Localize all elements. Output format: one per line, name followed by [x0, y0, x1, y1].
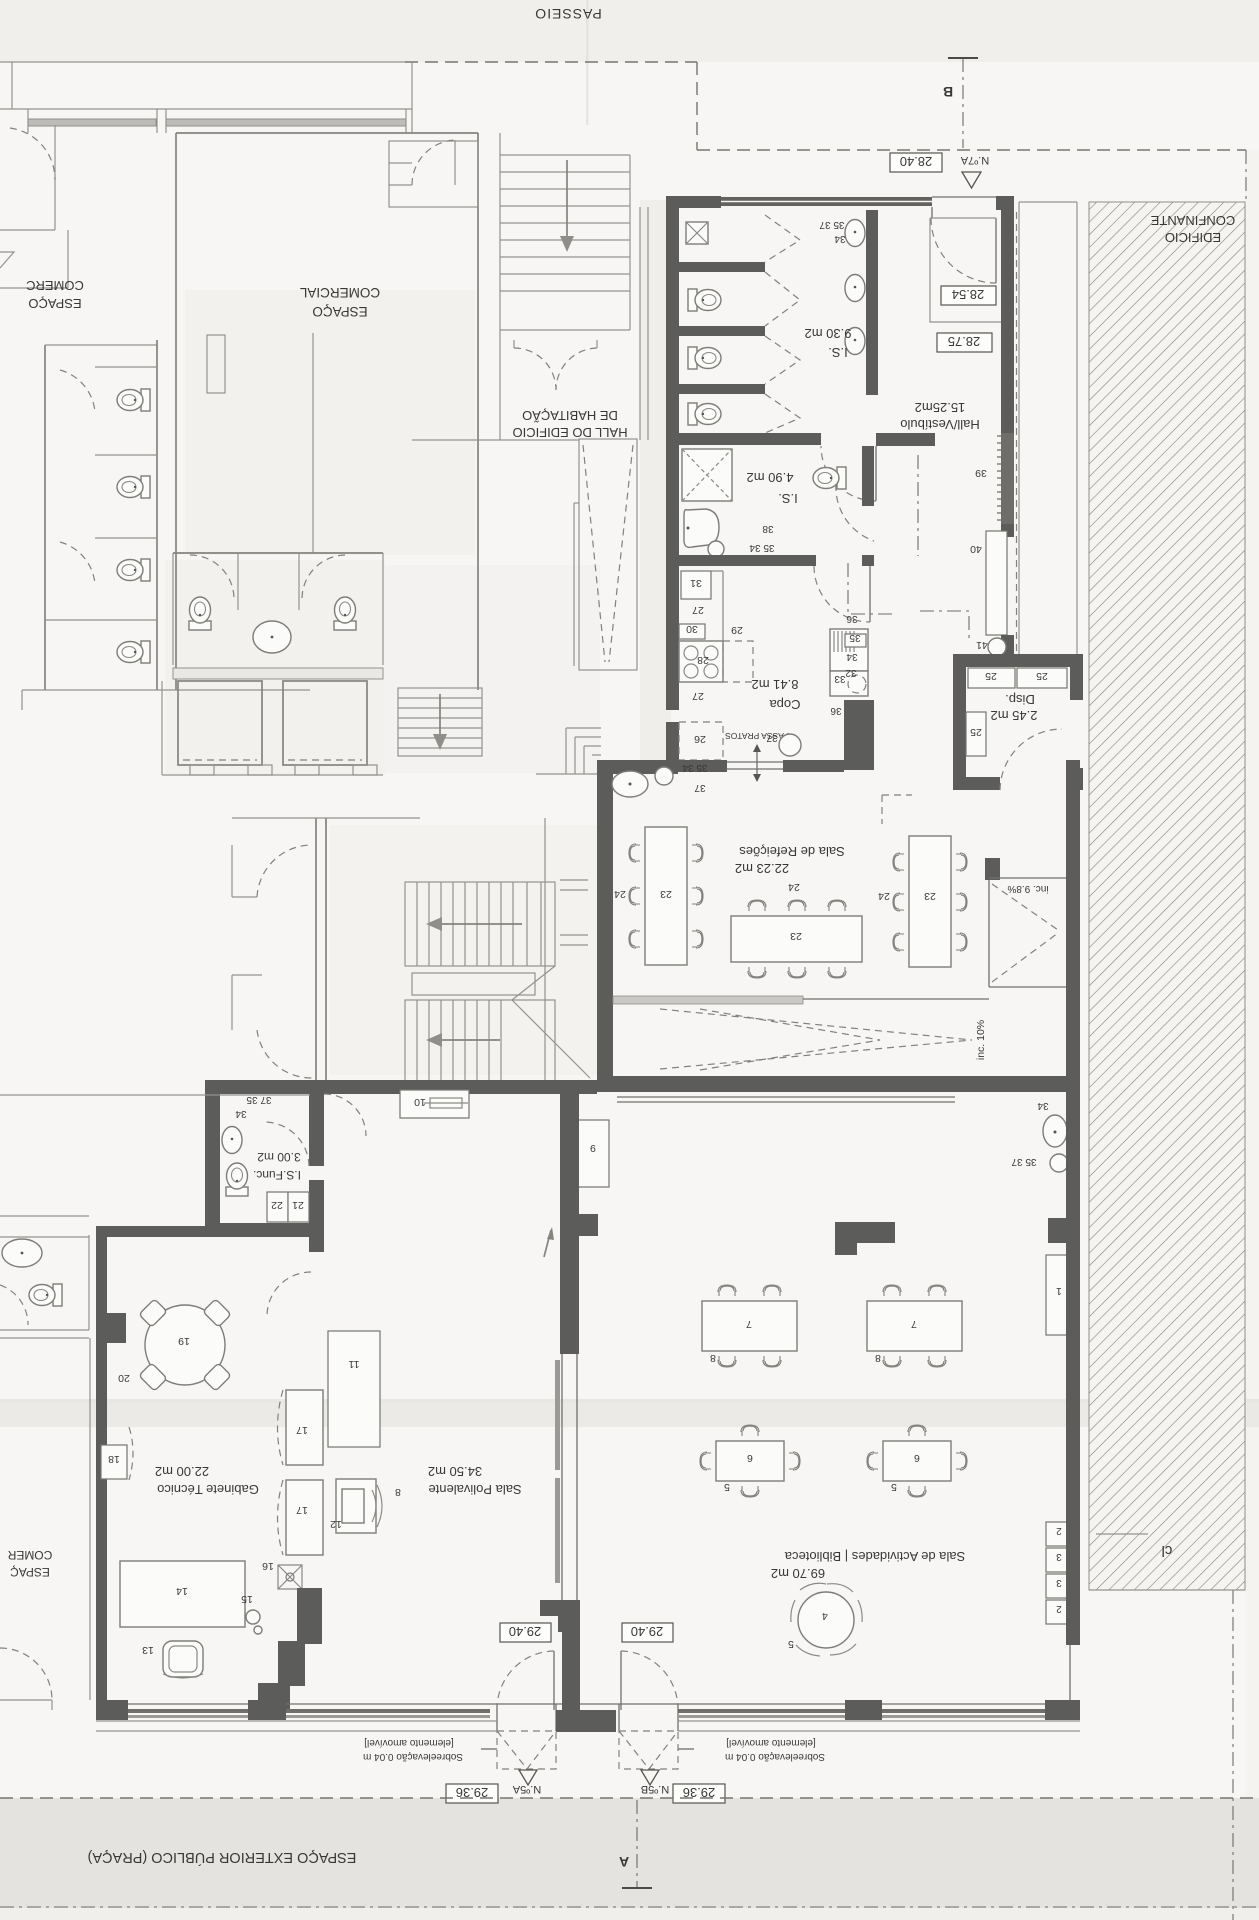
svg-text:24: 24 — [614, 888, 626, 900]
svg-text:17: 17 — [296, 1424, 308, 1436]
svg-text:PASSEIO: PASSEIO — [534, 6, 601, 22]
svg-text:37: 37 — [694, 782, 706, 793]
svg-text:7: 7 — [911, 1318, 917, 1330]
svg-text:28: 28 — [697, 654, 709, 666]
svg-text:3.00 m2: 3.00 m2 — [257, 1150, 301, 1164]
svg-text:23: 23 — [790, 930, 802, 942]
svg-text:Sala de Refeições: Sala de Refeições — [739, 844, 845, 859]
svg-text:40: 40 — [970, 543, 982, 555]
svg-text:15.25m2: 15.25m2 — [915, 400, 966, 415]
svg-text:31: 31 — [690, 577, 702, 589]
svg-text:DE HABITAÇÃO: DE HABITAÇÃO — [522, 408, 618, 423]
svg-text:4: 4 — [822, 1610, 828, 1622]
svg-text:38: 38 — [762, 523, 774, 534]
svg-text:34: 34 — [846, 651, 858, 662]
svg-text:A: A — [619, 1854, 629, 1870]
svg-text:33: 33 — [834, 673, 846, 684]
svg-text:I.S.Func.: I.S.Func. — [253, 1168, 301, 1182]
svg-text:Copa: Copa — [769, 697, 801, 712]
svg-text:8.41 m2: 8.41 m2 — [752, 677, 799, 692]
svg-text:36: 36 — [846, 613, 858, 624]
svg-text:3: 3 — [1056, 1551, 1062, 1562]
svg-text:2: 2 — [1056, 1525, 1062, 1536]
svg-text:COMER: COMER — [7, 1548, 52, 1562]
svg-text:4.90 m2: 4.90 m2 — [747, 470, 794, 485]
svg-text:30: 30 — [686, 623, 698, 635]
svg-text:35 37: 35 37 — [819, 219, 844, 230]
svg-text:34: 34 — [834, 233, 846, 244]
svg-text:8: 8 — [395, 1486, 401, 1498]
svg-text:24: 24 — [878, 890, 890, 902]
svg-text:ESPAÇ: ESPAÇ — [10, 1565, 50, 1579]
svg-text:17: 17 — [296, 1504, 308, 1516]
svg-text:27: 27 — [692, 604, 704, 616]
svg-text:2: 2 — [1056, 1603, 1062, 1614]
svg-text:28.75: 28.75 — [948, 334, 981, 349]
svg-text:2.45 m2: 2.45 m2 — [991, 708, 1038, 723]
svg-text:5: 5 — [788, 1638, 794, 1650]
svg-text:28.54: 28.54 — [952, 287, 985, 302]
svg-text:3: 3 — [1056, 1577, 1062, 1588]
svg-text:Disp.: Disp. — [1005, 692, 1035, 707]
svg-text:21: 21 — [292, 1199, 304, 1211]
svg-text:34.50 m2: 34.50 m2 — [428, 1464, 482, 1479]
svg-text:Sala Polivalente: Sala Polivalente — [428, 1482, 521, 1497]
svg-text:B: B — [943, 84, 953, 100]
svg-text:Sobreelevação 0.04 m: Sobreelevação 0.04 m — [363, 1751, 463, 1762]
svg-text:7: 7 — [746, 1318, 752, 1330]
svg-text:27: 27 — [692, 690, 704, 702]
svg-text:14: 14 — [176, 1585, 188, 1597]
svg-text:1: 1 — [1056, 1285, 1062, 1297]
svg-text:39: 39 — [975, 467, 987, 479]
svg-text:35 34: 35 34 — [682, 762, 707, 773]
svg-text:9: 9 — [590, 1142, 596, 1154]
svg-text:29: 29 — [731, 624, 743, 636]
svg-text:inc. 9.8%: inc. 9.8% — [1007, 883, 1048, 894]
svg-text:I.S.: I.S. — [828, 345, 848, 360]
svg-text:ESPAÇO: ESPAÇO — [312, 304, 367, 319]
svg-text:16: 16 — [262, 1560, 274, 1572]
svg-text:25: 25 — [1036, 670, 1048, 682]
svg-text:15: 15 — [241, 1593, 253, 1605]
svg-text:Hall/Vestíbulo: Hall/Vestíbulo — [900, 417, 980, 432]
svg-text:PASSA PRATOS: PASSA PRATOS — [725, 731, 789, 741]
svg-text:69.70 m2: 69.70 m2 — [771, 1566, 825, 1581]
svg-text:inc. 10%: inc. 10% — [975, 1020, 987, 1060]
svg-text:8: 8 — [875, 1352, 881, 1364]
svg-text:29.40: 29.40 — [509, 1624, 542, 1639]
svg-text:28.40: 28.40 — [900, 154, 933, 169]
svg-text:COMERC: COMERC — [26, 278, 84, 293]
svg-text:22: 22 — [271, 1199, 283, 1211]
svg-text:12: 12 — [330, 1518, 342, 1530]
svg-text:20: 20 — [118, 1372, 130, 1384]
svg-text:18: 18 — [108, 1453, 120, 1465]
svg-text:N.º7A: N.º7A — [960, 154, 989, 166]
svg-text:5: 5 — [891, 1481, 897, 1493]
svg-text:22.23 m2: 22.23 m2 — [735, 861, 789, 876]
svg-text:34: 34 — [235, 1108, 247, 1119]
svg-text:25: 25 — [970, 726, 982, 738]
svg-text:8: 8 — [710, 1352, 716, 1364]
svg-text:35 34: 35 34 — [749, 542, 774, 553]
svg-text:N.º5B: N.º5B — [641, 1783, 669, 1795]
svg-text:[elemento amovível]: [elemento amovível] — [726, 1737, 816, 1748]
svg-text:29.40: 29.40 — [631, 1624, 664, 1639]
svg-text:22.00 m2: 22.00 m2 — [155, 1464, 209, 1479]
svg-text:Sala de Actividades | Biblio: Sala de Actividades | Biblioteca — [784, 1549, 965, 1564]
svg-text:13: 13 — [142, 1644, 154, 1656]
svg-text:41: 41 — [976, 639, 988, 651]
svg-text:6: 6 — [914, 1452, 920, 1464]
svg-text:34: 34 — [1037, 1100, 1049, 1111]
svg-text:6: 6 — [747, 1452, 753, 1464]
svg-text:24: 24 — [788, 881, 800, 893]
svg-text:37: 37 — [766, 732, 778, 743]
svg-text:35: 35 — [849, 632, 861, 643]
svg-text:26: 26 — [694, 733, 706, 745]
svg-text:10: 10 — [414, 1096, 426, 1108]
svg-text:[elemento amovível]: [elemento amovível] — [364, 1737, 454, 1748]
svg-text:I.S.: I.S. — [778, 491, 798, 506]
svg-text:23: 23 — [924, 890, 936, 902]
svg-text:37 35: 37 35 — [246, 1094, 271, 1105]
svg-text:25: 25 — [985, 670, 997, 682]
svg-text:N.º5A: N.º5A — [512, 1783, 541, 1795]
svg-text:CONFINANTE: CONFINANTE — [1150, 213, 1235, 228]
svg-text:23: 23 — [660, 888, 672, 900]
svg-text:ESPAÇO EXTERIOR PÚBLICO (PRAÇA: ESPAÇO EXTERIOR PÚBLICO (PRAÇA) — [88, 1849, 357, 1866]
svg-text:35 37: 35 37 — [1011, 1156, 1036, 1167]
svg-text:Sobreelevação 0.04 m: Sobreelevação 0.04 m — [725, 1751, 825, 1762]
svg-text:11: 11 — [348, 1358, 359, 1370]
svg-text:9.30 m2: 9.30 m2 — [805, 326, 852, 341]
svg-text:cl: cl — [1162, 1542, 1173, 1559]
svg-text:EDIFICIO: EDIFICIO — [1165, 230, 1221, 245]
svg-text:HALL DO EDIFICIO: HALL DO EDIFICIO — [512, 425, 627, 440]
svg-text:19: 19 — [178, 1335, 190, 1347]
svg-text:5: 5 — [724, 1481, 730, 1493]
svg-text:Gabinete Técnico: Gabinete Técnico — [157, 1482, 259, 1497]
svg-text:COMERCIAL: COMERCIAL — [299, 285, 380, 300]
svg-text:ESPAÇO: ESPAÇO — [28, 296, 81, 311]
svg-text:32: 32 — [845, 667, 857, 678]
svg-text:36: 36 — [830, 705, 842, 716]
